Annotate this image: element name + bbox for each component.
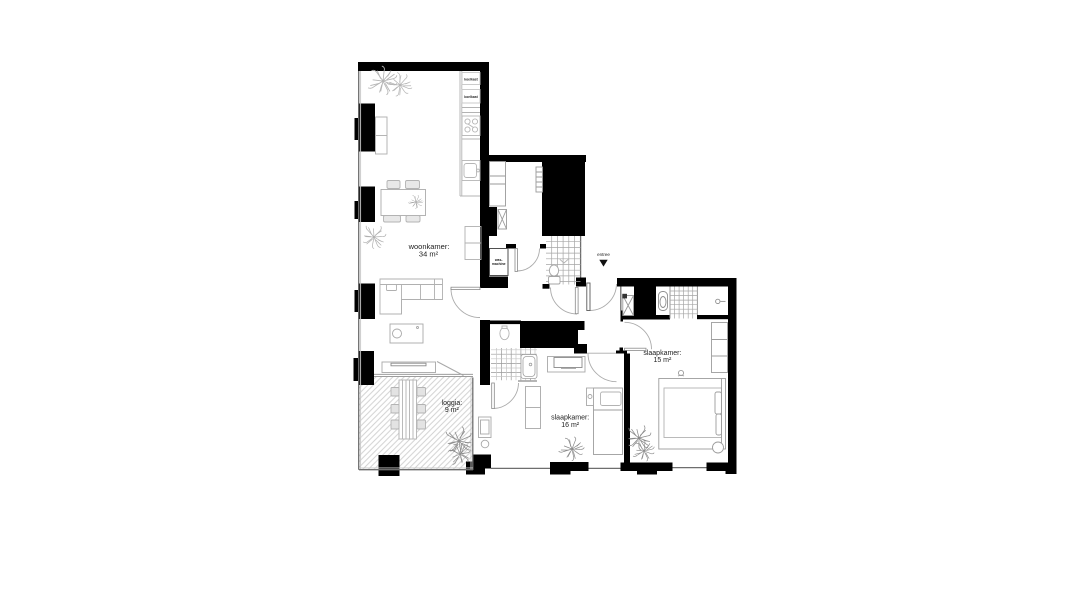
svg-text:16 m²: 16 m² <box>561 422 580 429</box>
svg-text:machine: machine <box>492 262 506 266</box>
svg-text:slaapkamer:: slaapkamer: <box>643 350 681 357</box>
svg-text:koelkast: koelkast <box>464 95 478 99</box>
svg-text:entree: entree <box>597 252 610 257</box>
svg-text:15 m²: 15 m² <box>653 357 672 364</box>
svg-text:34 m²: 34 m² <box>419 250 439 259</box>
svg-text:loggia:: loggia: <box>442 400 463 407</box>
svg-text:9 m²: 9 m² <box>445 407 460 414</box>
svg-text:slaapkamer:: slaapkamer: <box>551 415 589 422</box>
svg-text:koelkast: koelkast <box>464 77 478 81</box>
